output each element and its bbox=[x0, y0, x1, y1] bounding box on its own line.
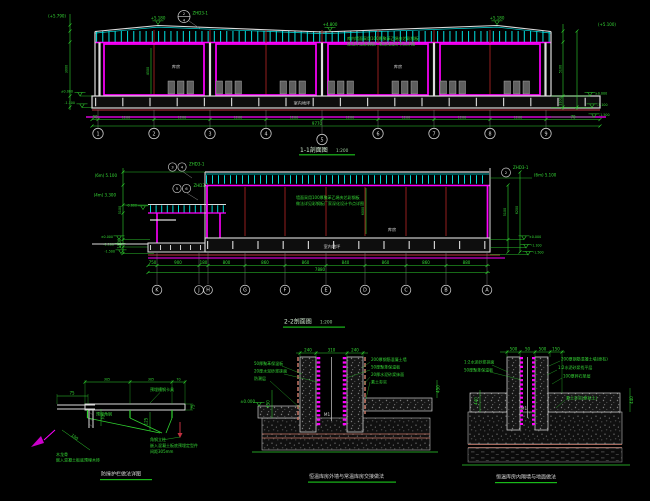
right-dimension-chain: 5100 6200 ±0.000 -1.100 -1.500 bbox=[490, 171, 544, 256]
grid-bubble: J bbox=[195, 286, 204, 295]
dim-value: 75 bbox=[69, 391, 75, 396]
drawing-canvas: 3000 (+5.790) ±0.000 -1.100 +5.180 +4.80… bbox=[0, 0, 650, 501]
grid-bubble: F bbox=[280, 285, 290, 295]
room-label: 库房 bbox=[388, 226, 396, 233]
grid-bubble: A bbox=[482, 285, 492, 295]
elevation-label: +5.180 bbox=[490, 15, 505, 20]
dim-label: 3000 bbox=[65, 65, 69, 73]
dim-value: 100 bbox=[70, 433, 79, 442]
elevation-label: -1.100 bbox=[597, 103, 608, 107]
dim-value: 750 bbox=[149, 260, 157, 265]
section-2-2: 5100 1100 (6m) 5.100 (4m) 3.300 ±0.000 -… bbox=[92, 162, 557, 328]
dim-label: 6000 bbox=[361, 207, 365, 215]
dim-label: 1100 bbox=[559, 97, 563, 105]
dim-value: 1200 bbox=[178, 115, 186, 119]
left-dimension-chain: 3000 (+5.790) ±0.000 -1.100 bbox=[48, 14, 92, 111]
elevation-label: (+5.790) bbox=[48, 14, 66, 19]
elevation-label: ±0.000 bbox=[595, 92, 607, 96]
dim-value: 305 bbox=[104, 378, 110, 382]
room-label: 库房 bbox=[172, 63, 180, 70]
view-title: 1-1剖面图 bbox=[300, 146, 328, 154]
elevation-label: ±0.000 bbox=[61, 90, 73, 94]
elevation-label: -1.500 bbox=[599, 113, 610, 117]
left-dimension-chain: 5100 1100 (6m) 5.100 (4m) 3.300 ±0.000 -… bbox=[94, 168, 205, 255]
note-line: 木龙骨 bbox=[56, 451, 68, 457]
detail-wall: M1 240 310 240 450 450 ±0.000 50厚聚苯保温板 2… bbox=[240, 348, 440, 483]
elevation-label: ±0.000 bbox=[240, 399, 255, 404]
elevation-label: +5.180 bbox=[151, 15, 166, 20]
note-line: 嵌入混凝土板底预埋木砖 bbox=[56, 457, 100, 463]
dim-value: 1200 bbox=[514, 115, 522, 119]
svg-text:B: B bbox=[444, 288, 447, 294]
clamp-label: 预埋槽钢卡具 bbox=[150, 386, 174, 392]
dim-value: 125 bbox=[144, 417, 149, 425]
svg-text:6: 6 bbox=[376, 131, 379, 137]
wall-note-line1: 墙面采用100厚聚苯乙烯夹芯彩钢板 bbox=[296, 194, 360, 200]
elevation-label: -1.500 bbox=[533, 250, 544, 254]
note-line: 20厚水泥砂浆抹面 bbox=[371, 371, 404, 377]
dim-value: 800 bbox=[223, 260, 231, 265]
svg-text:F: F bbox=[284, 288, 287, 294]
dim-label: 5100 bbox=[503, 208, 507, 216]
note-line: 50厚聚苯保温板 bbox=[464, 367, 493, 373]
detail-title: 恒温库房内隔墙与地面做法 bbox=[496, 474, 556, 481]
svg-text:G: G bbox=[243, 288, 247, 294]
svg-text:J: J bbox=[197, 288, 199, 294]
room-label: 库房 bbox=[394, 63, 402, 70]
elevation-label: (4m) 3.300 bbox=[94, 193, 117, 198]
elevation-label: -1.100 bbox=[64, 101, 75, 105]
dim-label: 5100 bbox=[559, 65, 563, 73]
grid-bubble: B bbox=[441, 285, 451, 295]
svg-text:9: 9 bbox=[544, 131, 547, 137]
structure-linework: 4500 bbox=[95, 30, 551, 96]
note-line: 1:2水泥砂浆抹面 bbox=[464, 359, 494, 365]
grid-bubble: G bbox=[240, 285, 250, 295]
dim-value: 50 bbox=[525, 347, 531, 352]
cad-drawing-sheet: 3000 (+5.790) ±0.000 -1.100 +5.180 +4.80… bbox=[0, 0, 650, 501]
section-2-2-title: 2-2剖面图 1:200 bbox=[283, 318, 345, 328]
elevation-label: -0.600 bbox=[126, 204, 137, 208]
grid-bubble: 1 bbox=[93, 128, 103, 138]
note-line: 200厚钢筋混凝土墙 bbox=[371, 356, 407, 362]
elevation-label: (6m) 5.100 bbox=[95, 173, 118, 178]
detail-floor: M1 500 50 500 150 440 440 1:2水泥砂浆抹面 50厚聚… bbox=[462, 347, 634, 484]
wall-note-line2: 做法详见彩钢板厂家深化设计节点详图 bbox=[347, 41, 415, 47]
dim-value: 860 bbox=[261, 260, 269, 265]
roof-truss bbox=[95, 26, 551, 43]
dim-value: 90 bbox=[92, 114, 98, 119]
elevation-label: (6m) 5.100 bbox=[534, 173, 557, 178]
dim-value: 70 bbox=[176, 378, 180, 382]
grid-bubble: 3 bbox=[205, 128, 215, 138]
wall-right bbox=[347, 357, 363, 432]
svg-text:D: D bbox=[363, 288, 367, 294]
detail-callout: 3 4 ZHD3-1 bbox=[168, 162, 205, 179]
note-line: 嵌入混凝土板底预埋定型件 bbox=[150, 442, 198, 448]
note-line: 20厚水泥砂浆抹面 bbox=[254, 368, 287, 374]
dim-value: 1200 bbox=[402, 115, 410, 119]
note-line: 角钢立柱 bbox=[150, 436, 166, 442]
callout-sheet: ZHD3-1 bbox=[193, 11, 209, 16]
rail-corner-subdetail: 75 70 100 木龙骨 嵌入混凝土板底预埋木砖 bbox=[31, 391, 106, 463]
elevation-label: (+5.100) bbox=[598, 22, 616, 27]
dim-value: 860 bbox=[382, 260, 390, 265]
wall-note-line1: 库内墙面采用100厚聚苯乙烯夹芯彩钢板 bbox=[347, 35, 419, 41]
total-dim: 9770 bbox=[312, 121, 323, 126]
view-scale: 1:200 bbox=[320, 320, 333, 326]
svg-text:5: 5 bbox=[320, 137, 323, 143]
wall-mark: M1 bbox=[521, 406, 528, 411]
callout-sheet: ZHD3-1 bbox=[513, 165, 529, 170]
elevation-label: +4.800 bbox=[323, 22, 338, 27]
dim-value: 240 bbox=[304, 348, 312, 353]
elevation-label: -1.500 bbox=[104, 250, 115, 254]
detail-wall-title: 恒温库房外墙与常温库房交接做法 bbox=[308, 473, 396, 483]
floor-slab-left bbox=[258, 406, 300, 418]
dim-value: 240 bbox=[351, 348, 359, 353]
detail-rail: 305 305 70 75 125 预埋槽钢卡具 预埋角钢 角钢立柱 嵌入混凝土… bbox=[31, 378, 198, 481]
grid-bubble: 8 bbox=[485, 128, 495, 138]
view-scale: 1:200 bbox=[336, 148, 349, 154]
elevation-flag-icon bbox=[77, 104, 88, 108]
detail-callout: 5 6 ZHD3-1 bbox=[173, 183, 210, 200]
grid-bubble: 6 bbox=[373, 128, 383, 138]
svg-text:7: 7 bbox=[432, 131, 435, 137]
section-1-1-title: 1-1剖面图 1:200 bbox=[299, 146, 355, 155]
dim-value: 305 bbox=[148, 378, 154, 382]
dim-value: 70 bbox=[101, 415, 106, 421]
detail-callout: 2 4 ZHD3-1 bbox=[178, 11, 208, 29]
dim-value: 1200 bbox=[458, 115, 466, 119]
svg-text:E: E bbox=[324, 288, 327, 294]
dim-value: 180 bbox=[200, 260, 208, 265]
dim-value: 440 bbox=[629, 396, 634, 404]
dim-value: 900 bbox=[174, 260, 182, 265]
svg-text:H: H bbox=[206, 288, 210, 294]
grid-bubble: K bbox=[152, 285, 162, 295]
detail-rail-title: 防撞护栏做法详图 bbox=[100, 471, 152, 481]
wall-left bbox=[507, 357, 520, 430]
note-line: 素土夯实(原状土) bbox=[566, 395, 598, 401]
wall-left bbox=[300, 357, 316, 432]
dim-value: 860 bbox=[422, 260, 430, 265]
detail-callout: 2 ZHD3-1 (6m) 5.100 bbox=[490, 165, 557, 178]
dim-value: 310 bbox=[328, 348, 336, 353]
slab-label: 室内地坪 bbox=[294, 99, 311, 106]
slab-label: 室内地坪 bbox=[324, 243, 341, 250]
detail-title: 防撞护栏做法详图 bbox=[101, 471, 141, 478]
dim-label: 6200 bbox=[515, 206, 519, 214]
dim-value: 450 bbox=[436, 385, 441, 393]
svg-text:4: 4 bbox=[264, 131, 267, 137]
dimension-row: 90 1200 1200 1200 1200 1200 1200 1200 12… bbox=[91, 110, 602, 134]
svg-text:8: 8 bbox=[488, 131, 491, 137]
grid-bubble: 5 bbox=[317, 134, 327, 144]
svg-text:1: 1 bbox=[96, 131, 99, 137]
total-dim: 7880 bbox=[315, 267, 326, 272]
dim-value: 1200 bbox=[122, 115, 130, 119]
floor-slab-right bbox=[363, 398, 432, 411]
dim-value: 440 bbox=[474, 397, 479, 405]
dim-value: 500 bbox=[539, 347, 547, 352]
dim-value: 880 bbox=[463, 260, 471, 265]
note-line: 1:2水泥砂浆找平层 bbox=[558, 364, 592, 370]
callout-sheet: ZHD3-1 bbox=[189, 162, 205, 167]
grid-bubble: 7 bbox=[429, 128, 439, 138]
grid-bubble: 2 bbox=[149, 128, 159, 138]
dim-value: 75 bbox=[191, 404, 196, 410]
note-line: 间距305mm bbox=[150, 448, 174, 454]
wall-right bbox=[535, 357, 548, 430]
grid-bubble: 4 bbox=[261, 128, 271, 138]
dim-label: 5100 bbox=[118, 206, 122, 214]
dim-label: 4500 bbox=[146, 67, 150, 75]
grid-bubble: 9 bbox=[541, 128, 551, 138]
note-line: 100厚碎石垫层 bbox=[563, 373, 591, 379]
wall-mark: M1 bbox=[324, 412, 331, 417]
note-line: 50厚聚苯保温板 bbox=[254, 360, 283, 366]
dim-value: 840 bbox=[342, 260, 350, 265]
elevation-label: -1.100 bbox=[531, 243, 542, 247]
dim-value: 500 bbox=[510, 347, 518, 352]
note-line: 防潮层 bbox=[254, 375, 266, 381]
dim-value: 860 bbox=[302, 260, 310, 265]
elevation-flag-icon bbox=[75, 92, 86, 96]
svg-text:3: 3 bbox=[208, 131, 211, 137]
grid-bubble: D bbox=[360, 285, 370, 295]
note-line: 200厚钢筋混凝土墙(原有) bbox=[561, 356, 608, 362]
grid-bubbles: K J H G F E D C B A bbox=[152, 285, 492, 295]
dim-value: 1200 bbox=[346, 115, 354, 119]
elevation-label: ±0.000 bbox=[101, 235, 113, 239]
dim-value: 1200 bbox=[290, 115, 298, 119]
grid-bubble: H bbox=[204, 286, 213, 295]
dim-value: 450 bbox=[266, 400, 271, 408]
svg-text:2: 2 bbox=[152, 131, 155, 137]
section-1-1: 3000 (+5.790) ±0.000 -1.100 +5.180 +4.80… bbox=[48, 11, 616, 156]
wall-note-line2: 做法详见彩钢板厂家深化设计节点详图 bbox=[296, 200, 364, 206]
detail-floor-title: 恒温库房内隔墙与地面做法 bbox=[495, 474, 557, 484]
dim-value: 150 bbox=[552, 347, 560, 352]
note-line: 50厚聚苯保温板 bbox=[371, 364, 400, 370]
view-title: 2-2剖面图 bbox=[284, 318, 312, 326]
note-line: 素土夯实 bbox=[371, 379, 387, 385]
grid-bubble: C bbox=[401, 285, 411, 295]
elevation-label: ±0.000 bbox=[529, 235, 541, 239]
subbase-hatch bbox=[468, 448, 622, 462]
dim-value: 1200 bbox=[234, 115, 242, 119]
grid-bubble: E bbox=[321, 285, 331, 295]
detail-title: 恒温库房外墙与常温库房交接做法 bbox=[309, 473, 384, 480]
floor-slab-band: 室内地坪 bbox=[86, 96, 606, 117]
